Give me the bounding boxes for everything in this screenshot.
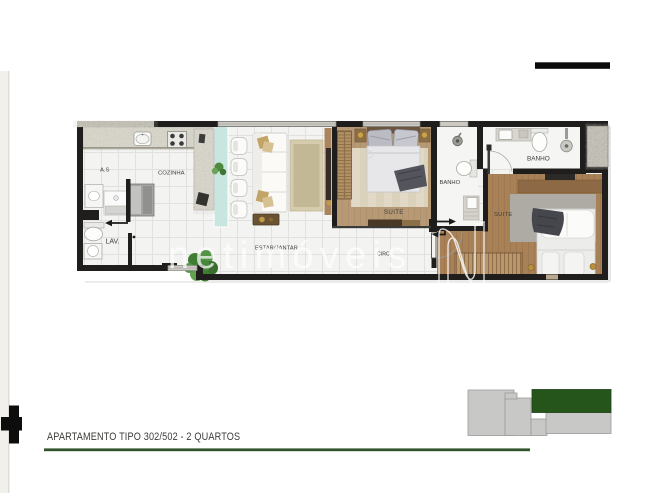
svg-text:APARTAMENTO TIPO 302/502 - 2 Q: APARTAMENTO TIPO 302/502 - 2 QUARTOS: [47, 431, 240, 443]
svg-text:LAV.: LAV.: [106, 239, 120, 246]
svg-text:COZINHA: COZINHA: [158, 171, 185, 177]
svg-text:BANHO: BANHO: [527, 156, 550, 163]
svg-text:SUITE: SUITE: [384, 209, 404, 216]
svg-text:SUITE: SUITE: [494, 212, 513, 218]
svg-text:A.S: A.S: [100, 168, 109, 174]
svg-text:netimóveis: netimóveis: [168, 235, 413, 277]
svg-text:BANHO: BANHO: [440, 180, 461, 186]
